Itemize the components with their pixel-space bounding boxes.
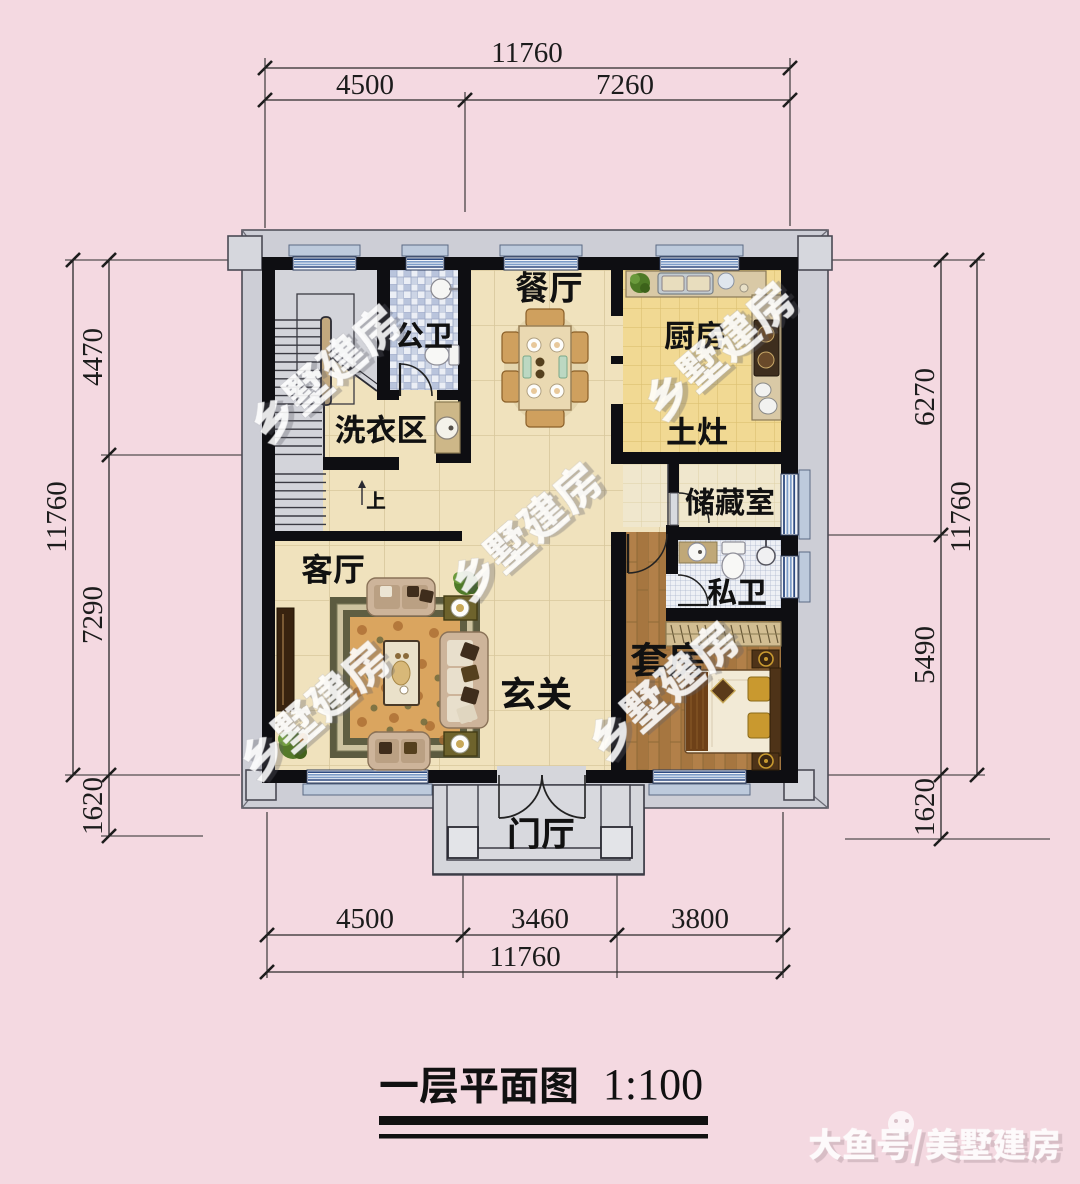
svg-text:1620: 1620 — [77, 777, 109, 835]
svg-text:4470: 4470 — [77, 328, 109, 386]
svg-text:5490: 5490 — [909, 626, 941, 684]
svg-text:4500: 4500 — [336, 69, 394, 101]
svg-text:11760: 11760 — [945, 481, 977, 552]
svg-text:11760: 11760 — [491, 37, 562, 69]
svg-text:7260: 7260 — [596, 69, 654, 101]
svg-text:1620: 1620 — [909, 778, 941, 836]
svg-text:1:100: 1:100 — [603, 1060, 703, 1109]
svg-text:7290: 7290 — [77, 586, 109, 644]
svg-text:11760: 11760 — [489, 941, 560, 973]
svg-text:3800: 3800 — [671, 903, 729, 935]
svg-text:4500: 4500 — [336, 903, 394, 935]
svg-text:3460: 3460 — [511, 903, 569, 935]
svg-text:6270: 6270 — [909, 368, 941, 426]
svg-text:11760: 11760 — [41, 481, 73, 552]
